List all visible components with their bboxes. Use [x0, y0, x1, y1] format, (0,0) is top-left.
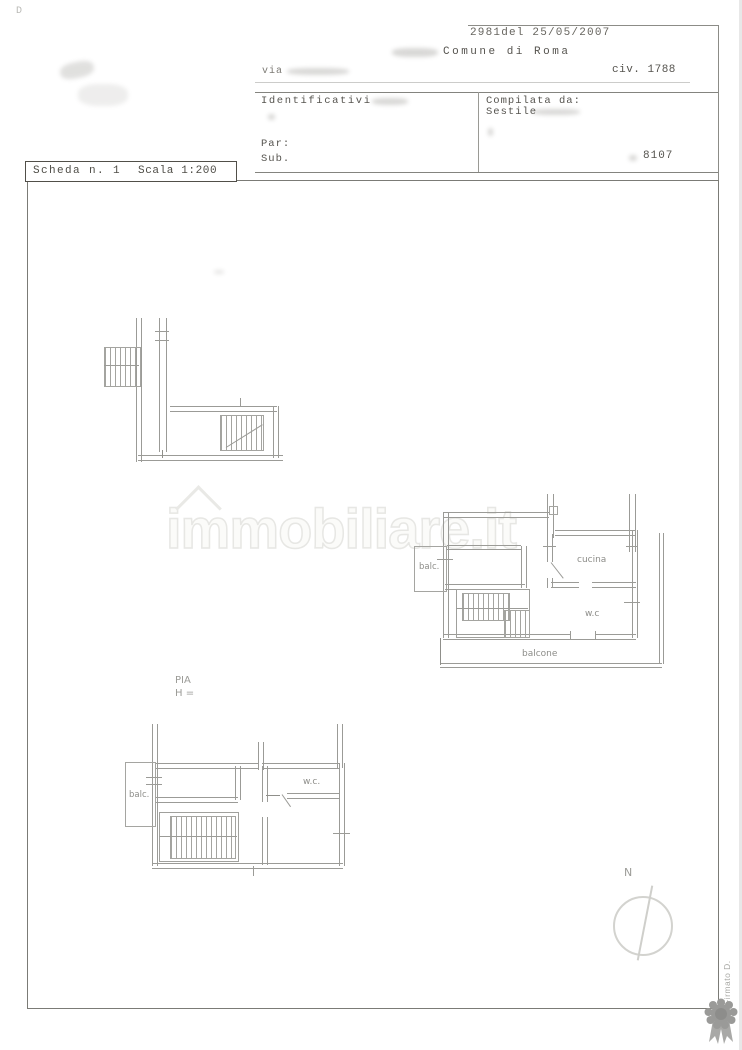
- wall-line: [521, 546, 527, 588]
- stair-hatch: [170, 816, 236, 859]
- wall-line: [266, 795, 280, 796]
- redacted-mark: [268, 114, 275, 120]
- wall-line: [555, 530, 635, 536]
- protocol-stamp: 2981del 25/05/2007: [470, 27, 610, 39]
- wall-line: [443, 512, 549, 518]
- sub-label: Sub.: [261, 154, 290, 166]
- door-tick: [253, 866, 254, 876]
- window-tick: [543, 546, 556, 547]
- civic-number: civ. 1788: [612, 64, 676, 76]
- floor-caption-line1: PIA: [175, 676, 191, 686]
- window-tick: [146, 777, 162, 778]
- blurred-stamp: [59, 59, 96, 82]
- window-tick: [624, 602, 640, 603]
- wall-line: [152, 863, 343, 869]
- stair-midline: [159, 836, 237, 837]
- table-top-line: [255, 92, 718, 93]
- chimney-column: [547, 494, 554, 538]
- identifiers-label: Identificativi: [261, 96, 372, 108]
- wall-line: [287, 793, 339, 799]
- chimney-column: [337, 724, 343, 768]
- door-tick: [595, 631, 596, 640]
- stair-hatch: [104, 347, 141, 387]
- protocol-box-right-line: [718, 25, 719, 180]
- sheet-number-label: Scheda n. 1: [33, 165, 121, 177]
- balcony-outline: [440, 663, 662, 668]
- parcel-label: Par:: [261, 139, 290, 151]
- wall-line: [235, 766, 241, 800]
- table-bottom-line: [255, 172, 718, 173]
- wall-line: [170, 406, 277, 412]
- scan-noise: [214, 270, 224, 274]
- wall-line: [447, 545, 521, 550]
- room-label-kitchen: cucina: [577, 556, 606, 565]
- window-tick: [146, 784, 162, 785]
- door-tick: [570, 631, 571, 640]
- corner-mark: D: [16, 6, 22, 17]
- doc-number: 8107: [643, 150, 673, 162]
- wall-line: [159, 318, 167, 452]
- redacted-street-name: [287, 68, 349, 75]
- redacted-number-prefix: [629, 155, 637, 161]
- door-tick: [155, 331, 169, 332]
- signature-note: Firmato D.: [722, 927, 735, 1005]
- room-label-balcony-bottom: balcone: [522, 650, 557, 659]
- door-tick: [240, 398, 241, 407]
- street-label: via: [262, 66, 283, 77]
- window-tick: [626, 546, 638, 547]
- wall-line: [262, 817, 268, 865]
- blurred-stamp-2: [78, 84, 128, 106]
- drawing-frame: [27, 180, 719, 1009]
- wall-line: [156, 797, 238, 803]
- redacted-compiler: [532, 109, 580, 115]
- wall-line: [262, 766, 268, 802]
- wall-line: [136, 318, 142, 462]
- redacted-identifiers: [372, 98, 408, 105]
- north-label: N: [624, 867, 632, 878]
- room-label-wc: w.c: [585, 610, 599, 619]
- wall-line: [547, 534, 553, 562]
- protocol-box-top-line: [468, 25, 719, 26]
- door-gap: [570, 634, 596, 638]
- wall-line: [551, 582, 579, 588]
- wall-line: [262, 763, 339, 769]
- compiled-by-name: Sestile: [486, 107, 537, 119]
- stair-midline: [104, 365, 139, 366]
- stair-midline: [456, 608, 528, 609]
- balcony-outline: [659, 533, 664, 664]
- room-label-balcony-left: balc.: [419, 563, 439, 572]
- door-tick: [155, 340, 169, 341]
- stair-hatch: [504, 610, 530, 638]
- redacted-mark-2: [488, 128, 493, 136]
- rosette-badge-icon: [700, 998, 742, 1048]
- wall-line: [162, 450, 163, 458]
- redacted-prefix: [392, 48, 438, 57]
- table-divider-line: [478, 92, 479, 172]
- wall-line: [138, 455, 283, 461]
- wall-line: [156, 763, 258, 769]
- flue-box: [549, 506, 558, 515]
- wall-line: [592, 582, 636, 588]
- floor-caption-line2: H =: [175, 689, 194, 699]
- window-tick: [437, 559, 453, 560]
- window-tick: [333, 833, 350, 834]
- room-label-balcony-left-3: balc.: [129, 791, 149, 800]
- balcony-outline: [440, 638, 441, 665]
- scanned-cadastral-sheet: D 2981del 25/05/2007 Comune di Roma via …: [0, 0, 742, 1050]
- sheet-scale-box: Scheda n. 1 Scala 1:200: [25, 161, 237, 182]
- street-underline: [255, 82, 690, 83]
- scale-label: Scala 1:200: [138, 165, 217, 177]
- municipality-label: Comune di Roma: [443, 46, 570, 58]
- stair-hatch: [462, 593, 510, 621]
- wall-line: [339, 763, 345, 866]
- room-label-wc-3: w.c.: [303, 778, 320, 787]
- wall-line: [273, 406, 279, 458]
